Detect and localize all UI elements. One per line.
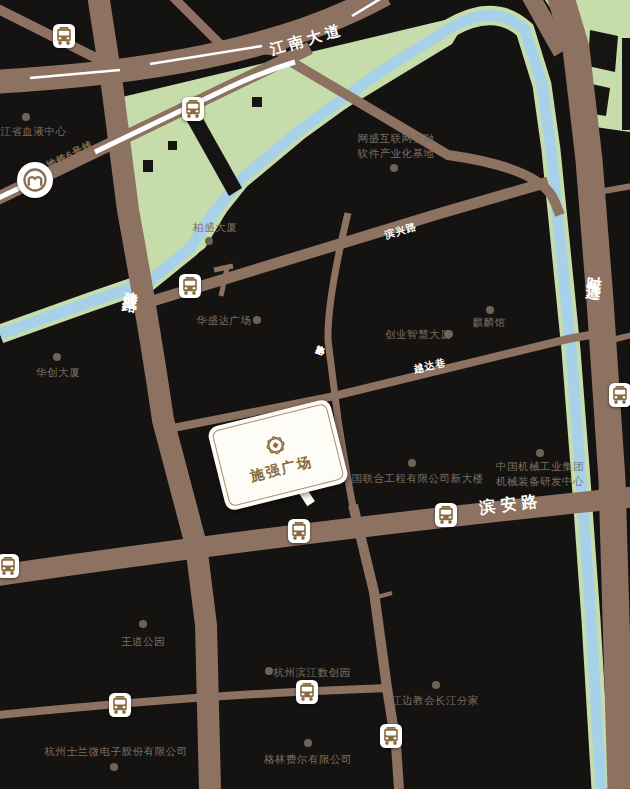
poi-label-huachuang-tower: 华创大厦 xyxy=(36,365,80,380)
bus-stop-icon xyxy=(288,519,310,543)
shiqiang-plaza-label: 施强广场 xyxy=(248,453,314,486)
shiqiang-plaza-logo-icon xyxy=(261,429,291,460)
bus-stop-icon xyxy=(0,554,19,578)
poi-label-line: 机械装备研发中心 xyxy=(496,475,584,487)
bus-stop-icon xyxy=(182,97,204,121)
bus-stop-icon xyxy=(609,383,630,407)
poi-label-blood-center: 浙江省血液中心 xyxy=(0,124,67,139)
poi-label-china-united-engineering: 中国联合工程有限公司新大楼 xyxy=(341,471,484,486)
poi-dot xyxy=(139,620,147,628)
poi-dot xyxy=(304,739,312,747)
poi-label-baisheng-tower: 柏盛大厦 xyxy=(193,220,237,235)
poi-label-netsun-base: 网盛互联网金融 软件产业化基地 xyxy=(358,131,435,161)
poi-label-sinomach-center: 中国机械工业集团 机械装备研发中心 xyxy=(496,459,584,489)
bus-stop-icon xyxy=(435,503,457,527)
poi-label-chuangye-smart-tower: 创业智慧大厦 xyxy=(385,327,451,342)
bus-stop-icon xyxy=(179,274,201,298)
road-stub-cross-cap xyxy=(214,266,233,270)
bus-stop-icon xyxy=(296,680,318,704)
road-stub-cross xyxy=(221,268,227,296)
poi-label-huashengda-plaza: 华盛达广场 xyxy=(197,313,252,328)
road-yueda xyxy=(168,331,612,429)
poi-dot xyxy=(390,164,398,172)
poi-dot xyxy=(536,449,544,457)
poi-label-riverside-church: 江边教会长江分家 xyxy=(391,693,479,708)
poi-label-binjiang-digital-park: 杭州滨江数创园 xyxy=(274,665,351,680)
bus-stop-icon xyxy=(53,24,75,48)
poi-dot xyxy=(486,306,494,314)
bus-stop-icon xyxy=(380,724,402,748)
poi-label-qilin-hall: 麒麟馆 xyxy=(473,315,506,330)
road-label-shidai-avenue: 时代大道 xyxy=(585,263,605,277)
poi-dot xyxy=(432,681,440,689)
poi-dot xyxy=(22,113,30,121)
poi-dot xyxy=(205,237,213,245)
metro-station-icon xyxy=(17,162,53,198)
poi-label-silan-micro: 杭州士兰微电子股份有限公司 xyxy=(45,744,188,759)
poi-label-line: 软件产业化基地 xyxy=(358,147,435,159)
poi-dot xyxy=(53,353,61,361)
poi-label-greenfell: 格林费尔有限公司 xyxy=(264,752,352,767)
poi-label-line: 网盛互联网金融 xyxy=(358,132,435,144)
poi-label-wangdao-park: 王道公园 xyxy=(121,634,165,649)
poi-dot xyxy=(253,316,261,324)
bus-stop-icon xyxy=(109,693,131,717)
poi-label-line: 中国机械工业集团 xyxy=(496,460,584,472)
poi-dot xyxy=(408,459,416,467)
road-south xyxy=(0,688,388,716)
map-canvas: 施强广场 江南大道 地铁6号线 建业路 滨兴路 时代大道 越达巷 协丰路 滨安路… xyxy=(0,0,630,789)
poi-dot xyxy=(265,667,273,675)
poi-dot xyxy=(110,763,118,771)
